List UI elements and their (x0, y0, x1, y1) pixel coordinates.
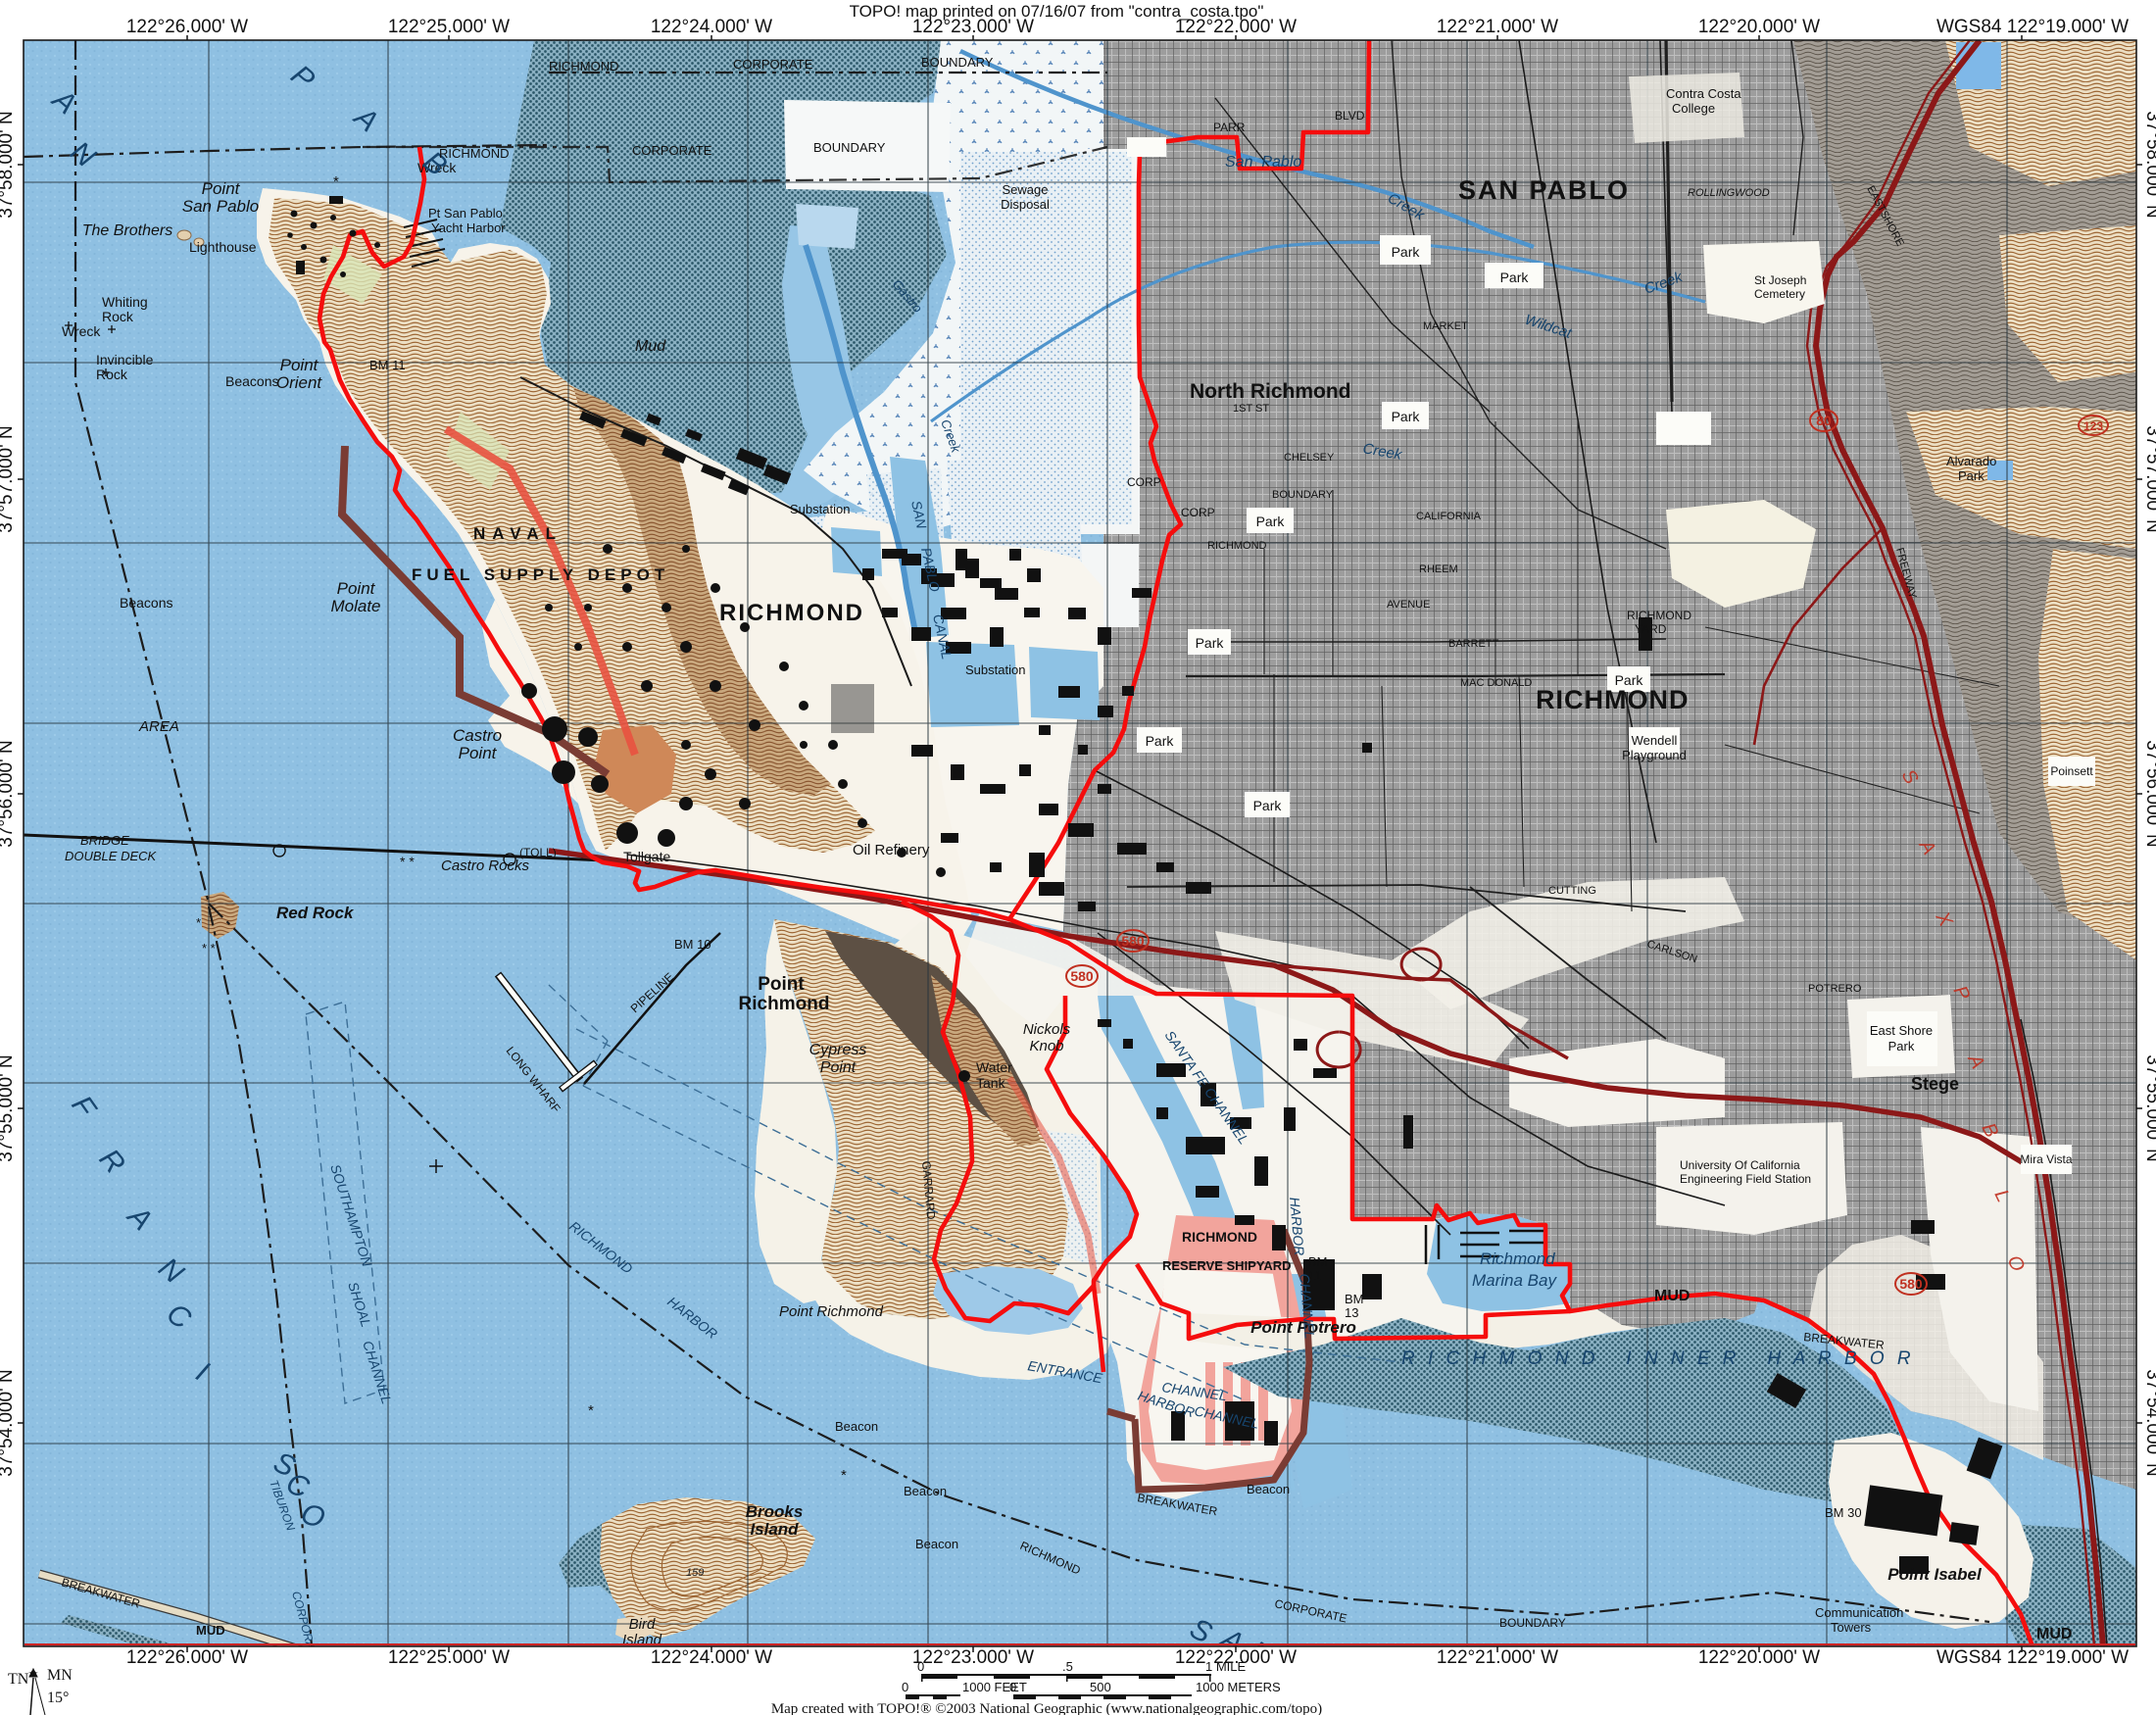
svg-text:1ST ST: 1ST ST (1233, 403, 1269, 415)
svg-text:Tank: Tank (976, 1075, 1006, 1091)
svg-text:MUD: MUD (196, 1623, 225, 1638)
svg-text:Map created with TOPO!® ©2003: Map created with TOPO!® ©2003 National G… (771, 1701, 1322, 1715)
svg-text:BRIDGE: BRIDGE (80, 833, 129, 848)
svg-text:Point: Point (820, 1059, 857, 1076)
svg-text:CORP: CORP (1127, 475, 1161, 489)
svg-text:BOUNDARY: BOUNDARY (1499, 1616, 1566, 1630)
svg-text:RICHMOND: RICHMOND (549, 59, 619, 73)
svg-text:Bird: Bird (629, 1616, 656, 1633)
svg-text:*: * (333, 173, 339, 190)
svg-text:0: 0 (902, 1680, 908, 1694)
svg-text:MN: MN (47, 1667, 73, 1684)
svg-text:Point: Point (202, 179, 241, 198)
svg-text:37°56.000' N: 37°56.000' N (2142, 740, 2156, 847)
svg-text:37°55.000' N: 37°55.000' N (0, 1054, 17, 1161)
svg-text:ROLLINGWOOD: ROLLINGWOOD (1688, 187, 1770, 199)
svg-text:POTRERO: POTRERO (1808, 983, 1862, 995)
svg-text:Substation: Substation (790, 502, 850, 516)
svg-text:BM: BM (1345, 1292, 1364, 1306)
svg-text:159: 159 (686, 1567, 704, 1579)
svg-text:University Of California: University Of California (1680, 1158, 1800, 1172)
svg-text:Playground: Playground (1622, 748, 1687, 762)
svg-text:BM 30: BM 30 (1825, 1505, 1862, 1520)
svg-text:Knob: Knob (1029, 1038, 1063, 1054)
svg-text:Park: Park (1146, 733, 1175, 749)
svg-text:Communication: Communication (1815, 1605, 1903, 1620)
svg-text:Beacon: Beacon (1247, 1482, 1290, 1496)
svg-text:Brooks: Brooks (746, 1502, 804, 1521)
svg-text:Contra Costa: Contra Costa (1666, 86, 1741, 101)
svg-text:37°56.000' N: 37°56.000' N (0, 740, 17, 847)
svg-text:YARD: YARD (1635, 622, 1667, 636)
svg-text:CORPORATE: CORPORATE (733, 57, 813, 72)
svg-text:Sewage: Sewage (1003, 182, 1049, 197)
svg-text:Wendell: Wendell (1632, 733, 1678, 748)
svg-text:1000 METERS: 1000 METERS (1196, 1680, 1281, 1694)
svg-text:RHEEM: RHEEM (1419, 563, 1458, 575)
svg-text:Park: Park (1196, 635, 1225, 651)
svg-text:37°54.000' N: 37°54.000' N (0, 1369, 17, 1476)
svg-text:122°21.000' W: 122°21.000' W (1437, 17, 1558, 37)
svg-text:37°57.000' N: 37°57.000' N (2142, 425, 2156, 532)
svg-text:San Pablo: San Pablo (1225, 154, 1301, 171)
svg-text:SAN PABLO: SAN PABLO (1458, 175, 1630, 205)
svg-text:122°22.000' W: 122°22.000' W (1175, 17, 1297, 37)
svg-text:Nickols: Nickols (1023, 1021, 1071, 1038)
svg-text:122°25.000' W: 122°25.000' W (388, 17, 510, 37)
svg-text:1 MILE: 1 MILE (1205, 1659, 1247, 1674)
svg-text:* *: * * (202, 941, 216, 955)
svg-text:Wreck: Wreck (62, 323, 101, 339)
svg-text:*: * (196, 915, 201, 930)
svg-text:Engineering Field Station: Engineering Field Station (1680, 1172, 1811, 1186)
svg-text:Point: Point (758, 974, 805, 995)
svg-text:0: 0 (917, 1659, 924, 1674)
svg-text:BM 11: BM 11 (369, 358, 406, 372)
svg-text:Substation: Substation (965, 662, 1025, 677)
svg-text:Park: Park (1253, 798, 1283, 813)
svg-text:Orient: Orient (276, 373, 323, 392)
svg-text:Point: Point (280, 356, 319, 374)
svg-text:RICHMOND: RICHMOND (1536, 685, 1690, 714)
svg-text:1000 FEET: 1000 FEET (962, 1680, 1027, 1694)
svg-text:WGS84 122°19.000' W: WGS84 122°19.000' W (1936, 17, 2129, 37)
svg-text:CUTTING: CUTTING (1548, 885, 1596, 897)
svg-text:Cypress: Cypress (809, 1042, 867, 1058)
svg-text:Alvarado: Alvarado (1946, 454, 1996, 468)
svg-text:Beacon: Beacon (835, 1419, 878, 1434)
svg-text:BM 10: BM 10 (674, 937, 711, 952)
svg-text:37°54.000' N: 37°54.000' N (2142, 1369, 2156, 1476)
svg-text:CHELSEY: CHELSEY (1284, 452, 1335, 464)
svg-text:Yacht Harbor: Yacht Harbor (431, 220, 506, 235)
svg-text:AREA: AREA (138, 718, 179, 735)
svg-text:580: 580 (1121, 933, 1145, 949)
svg-text:37°55.000' N: 37°55.000' N (2142, 1054, 2156, 1161)
svg-text:North Richmond: North Richmond (1190, 380, 1350, 403)
svg-text:15°: 15° (47, 1690, 69, 1706)
svg-text:Richmond: Richmond (739, 994, 830, 1014)
svg-text:TN: TN (8, 1671, 29, 1688)
svg-text:123: 123 (2083, 419, 2103, 433)
svg-text:The Brothers: The Brothers (82, 222, 172, 239)
svg-text:Mud: Mud (635, 338, 666, 355)
svg-text:CORP: CORP (1181, 506, 1215, 519)
svg-text:Park: Park (1958, 468, 1984, 483)
svg-text:Beacon: Beacon (915, 1537, 958, 1551)
svg-text:Point Richmond: Point Richmond (779, 1303, 884, 1320)
svg-text:RESERVE SHIPYARD: RESERVE SHIPYARD (1162, 1258, 1292, 1273)
svg-text:Park: Park (1392, 409, 1421, 424)
svg-text:Molate: Molate (330, 597, 380, 615)
svg-text:✧: ✧ (27, 1665, 39, 1681)
svg-text:Point: Point (459, 744, 498, 762)
svg-text:Point: Point (337, 579, 376, 598)
svg-text:500: 500 (1090, 1680, 1111, 1694)
svg-text:BOUNDARY: BOUNDARY (1272, 489, 1334, 501)
svg-text:122°20.000' W: 122°20.000' W (1698, 17, 1820, 37)
svg-text:RICHMOND: RICHMOND (1207, 540, 1267, 552)
svg-text:Beacon: Beacon (904, 1484, 947, 1498)
svg-text:Pt San Pablo: Pt San Pablo (428, 206, 503, 220)
svg-text:Stege: Stege (1911, 1074, 1959, 1094)
svg-text:BOUNDARY: BOUNDARY (921, 55, 994, 70)
svg-text:Richmond: Richmond (1480, 1249, 1555, 1268)
svg-text:Whiting: Whiting (102, 294, 148, 310)
svg-text:Park: Park (1888, 1039, 1915, 1053)
svg-text:Park: Park (1500, 269, 1530, 285)
svg-text:College: College (1672, 101, 1715, 116)
svg-text:MAC DONALD: MAC DONALD (1460, 677, 1532, 689)
svg-text:Disposal: Disposal (1001, 197, 1050, 212)
svg-text:Castro: Castro (453, 726, 502, 745)
svg-text:Marina Bay: Marina Bay (1472, 1271, 1557, 1290)
svg-text:580: 580 (1899, 1276, 1923, 1292)
svg-text:Park: Park (1256, 514, 1286, 529)
svg-text:Point Isabel: Point Isabel (1887, 1565, 1983, 1584)
svg-text:* *: * * (400, 854, 415, 869)
svg-text:37°58.000' N: 37°58.000' N (0, 111, 17, 218)
svg-text:Rock: Rock (102, 309, 134, 324)
svg-text:*: * (841, 1467, 847, 1484)
svg-text:BM: BM (1308, 1254, 1328, 1269)
svg-text:Oil Refinery: Oil Refinery (853, 842, 930, 858)
svg-text:R I C H M O N D I N N E R: R I C H M O N D I N N E R H A R B O R (1401, 1348, 1915, 1369)
svg-text:RICHMOND: RICHMOND (1182, 1229, 1257, 1245)
svg-text:Island: Island (750, 1520, 799, 1539)
svg-text:Water: Water (976, 1059, 1012, 1075)
svg-text:RICHMOND: RICHMOND (1627, 609, 1691, 622)
svg-text:BOUNDARY: BOUNDARY (813, 140, 886, 155)
svg-text:37°58.000' N: 37°58.000' N (2142, 111, 2156, 218)
svg-text:Beacons: Beacons (120, 595, 172, 611)
svg-text:Red Rock: Red Rock (276, 904, 355, 922)
svg-text:Tollgate: Tollgate (623, 849, 670, 864)
svg-text:Mira Vista: Mira Vista (2020, 1152, 2072, 1166)
svg-text:80: 80 (1816, 413, 1832, 428)
svg-text:Cemetery: Cemetery (1754, 287, 1805, 301)
svg-text:122°26.000' W: 122°26.000' W (126, 17, 248, 37)
svg-text:RICHMOND: RICHMOND (719, 600, 864, 626)
svg-text:CALIFORNIA: CALIFORNIA (1416, 511, 1482, 522)
svg-text:Towers: Towers (1831, 1620, 1872, 1635)
svg-text:122°24.000' W: 122°24.000' W (651, 17, 772, 37)
svg-text:Poinsett: Poinsett (2050, 764, 2093, 778)
svg-text:PARR: PARR (1213, 121, 1246, 134)
svg-text:Castro Rocks: Castro Rocks (441, 857, 530, 874)
svg-text:East Shore: East Shore (1870, 1023, 1933, 1038)
svg-text:RICHMOND: RICHMOND (439, 146, 510, 161)
svg-text:580: 580 (1070, 968, 1094, 984)
svg-text:BARRETT: BARRETT (1448, 638, 1499, 650)
svg-text:*: * (588, 1402, 594, 1419)
svg-text:(TOLL): (TOLL) (519, 846, 557, 859)
svg-text:MUD: MUD (2036, 1626, 2072, 1642)
svg-text:St Joseph: St Joseph (1754, 273, 1806, 287)
svg-text:DOUBLE DECK: DOUBLE DECK (65, 849, 158, 863)
svg-text:Beacons: Beacons (225, 373, 278, 389)
svg-text:WGS84 122°19.000' W: WGS84 122°19.000' W (1936, 1647, 2129, 1668)
svg-text:Rock: Rock (96, 367, 128, 382)
svg-text:Lighthouse: Lighthouse (189, 239, 257, 255)
svg-text:FUEL SUPPLY DEPOT: FUEL SUPPLY DEPOT (412, 565, 669, 584)
svg-text:.5: .5 (1062, 1659, 1073, 1674)
svg-text:Park: Park (1392, 244, 1421, 260)
svg-text:CORPORATE: CORPORATE (632, 143, 712, 158)
svg-text:San Pablo: San Pablo (182, 197, 259, 216)
svg-text:0: 0 (1009, 1680, 1016, 1694)
svg-text:AVENUE: AVENUE (1387, 599, 1430, 611)
svg-text:MUD: MUD (1654, 1288, 1690, 1304)
svg-text:122°23.000' W: 122°23.000' W (912, 17, 1034, 37)
svg-text:37°57.000' N: 37°57.000' N (0, 425, 17, 532)
svg-text:BLVD: BLVD (1335, 109, 1365, 122)
svg-text:NAVAL: NAVAL (473, 524, 563, 543)
svg-text:Invincible: Invincible (96, 352, 154, 367)
svg-text:MARKET: MARKET (1423, 320, 1468, 332)
